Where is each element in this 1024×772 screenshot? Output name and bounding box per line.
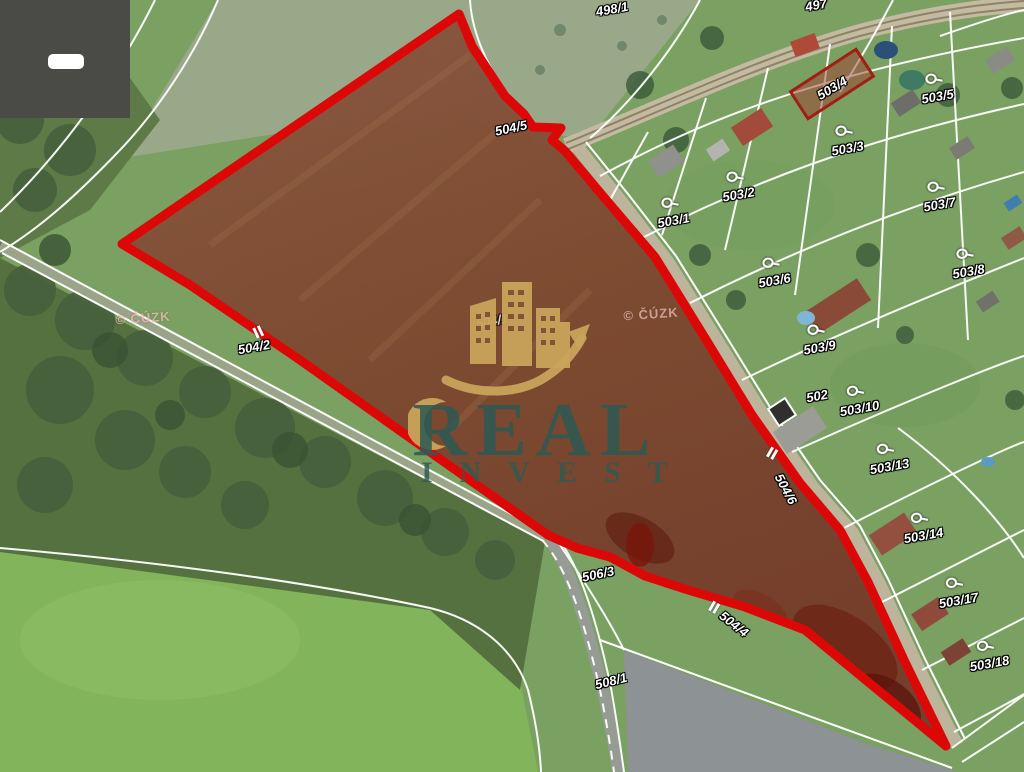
corner-overlay-panel xyxy=(0,0,130,118)
map-viewport: 498/1497503/4503/5503/3503/2503/1503/750… xyxy=(0,0,1024,772)
satellite-map xyxy=(0,0,1024,772)
minimize-dash-icon xyxy=(48,54,84,69)
